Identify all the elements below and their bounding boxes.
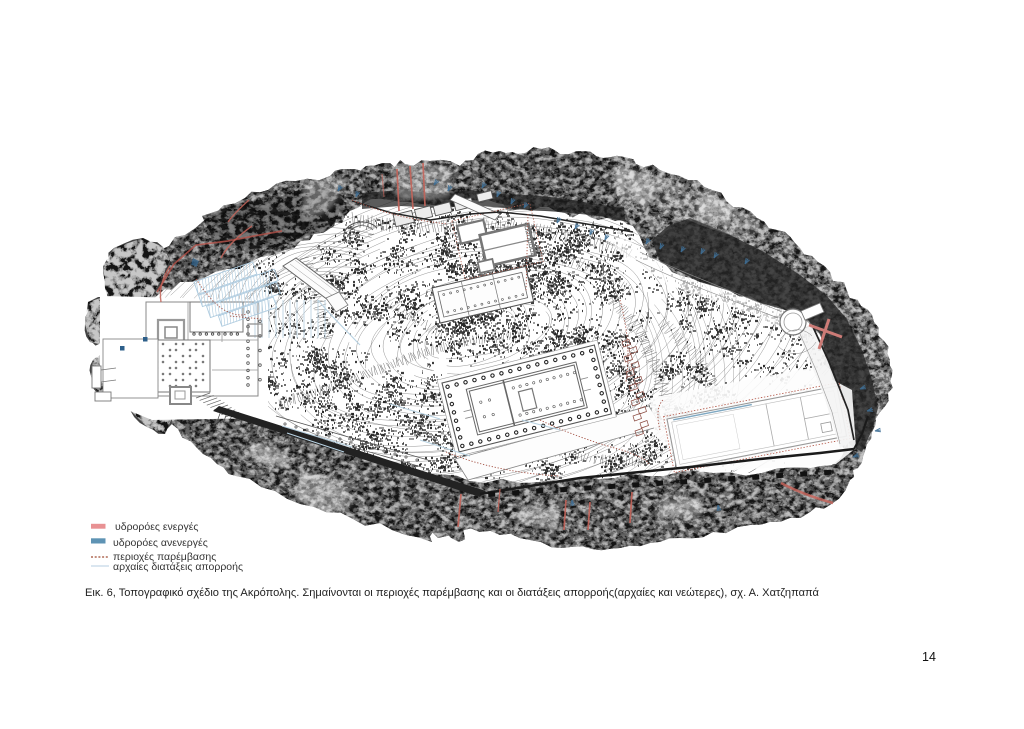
svg-text:υδρορόες ενεργές: υδρορόες ενεργές bbox=[115, 521, 198, 533]
svg-text:αρχαίες διατάξεις απορροής: αρχαίες διατάξεις απορροής bbox=[113, 561, 243, 573]
svg-text:14: 14 bbox=[922, 650, 936, 664]
svg-text:Εικ. 6, Τοπογραφικό σχέδιο της: Εικ. 6, Τοπογραφικό σχέδιο της Ακρόπολης… bbox=[85, 587, 819, 599]
svg-text:υδρορόες ανενεργές: υδρορόες ανενεργές bbox=[113, 537, 208, 549]
